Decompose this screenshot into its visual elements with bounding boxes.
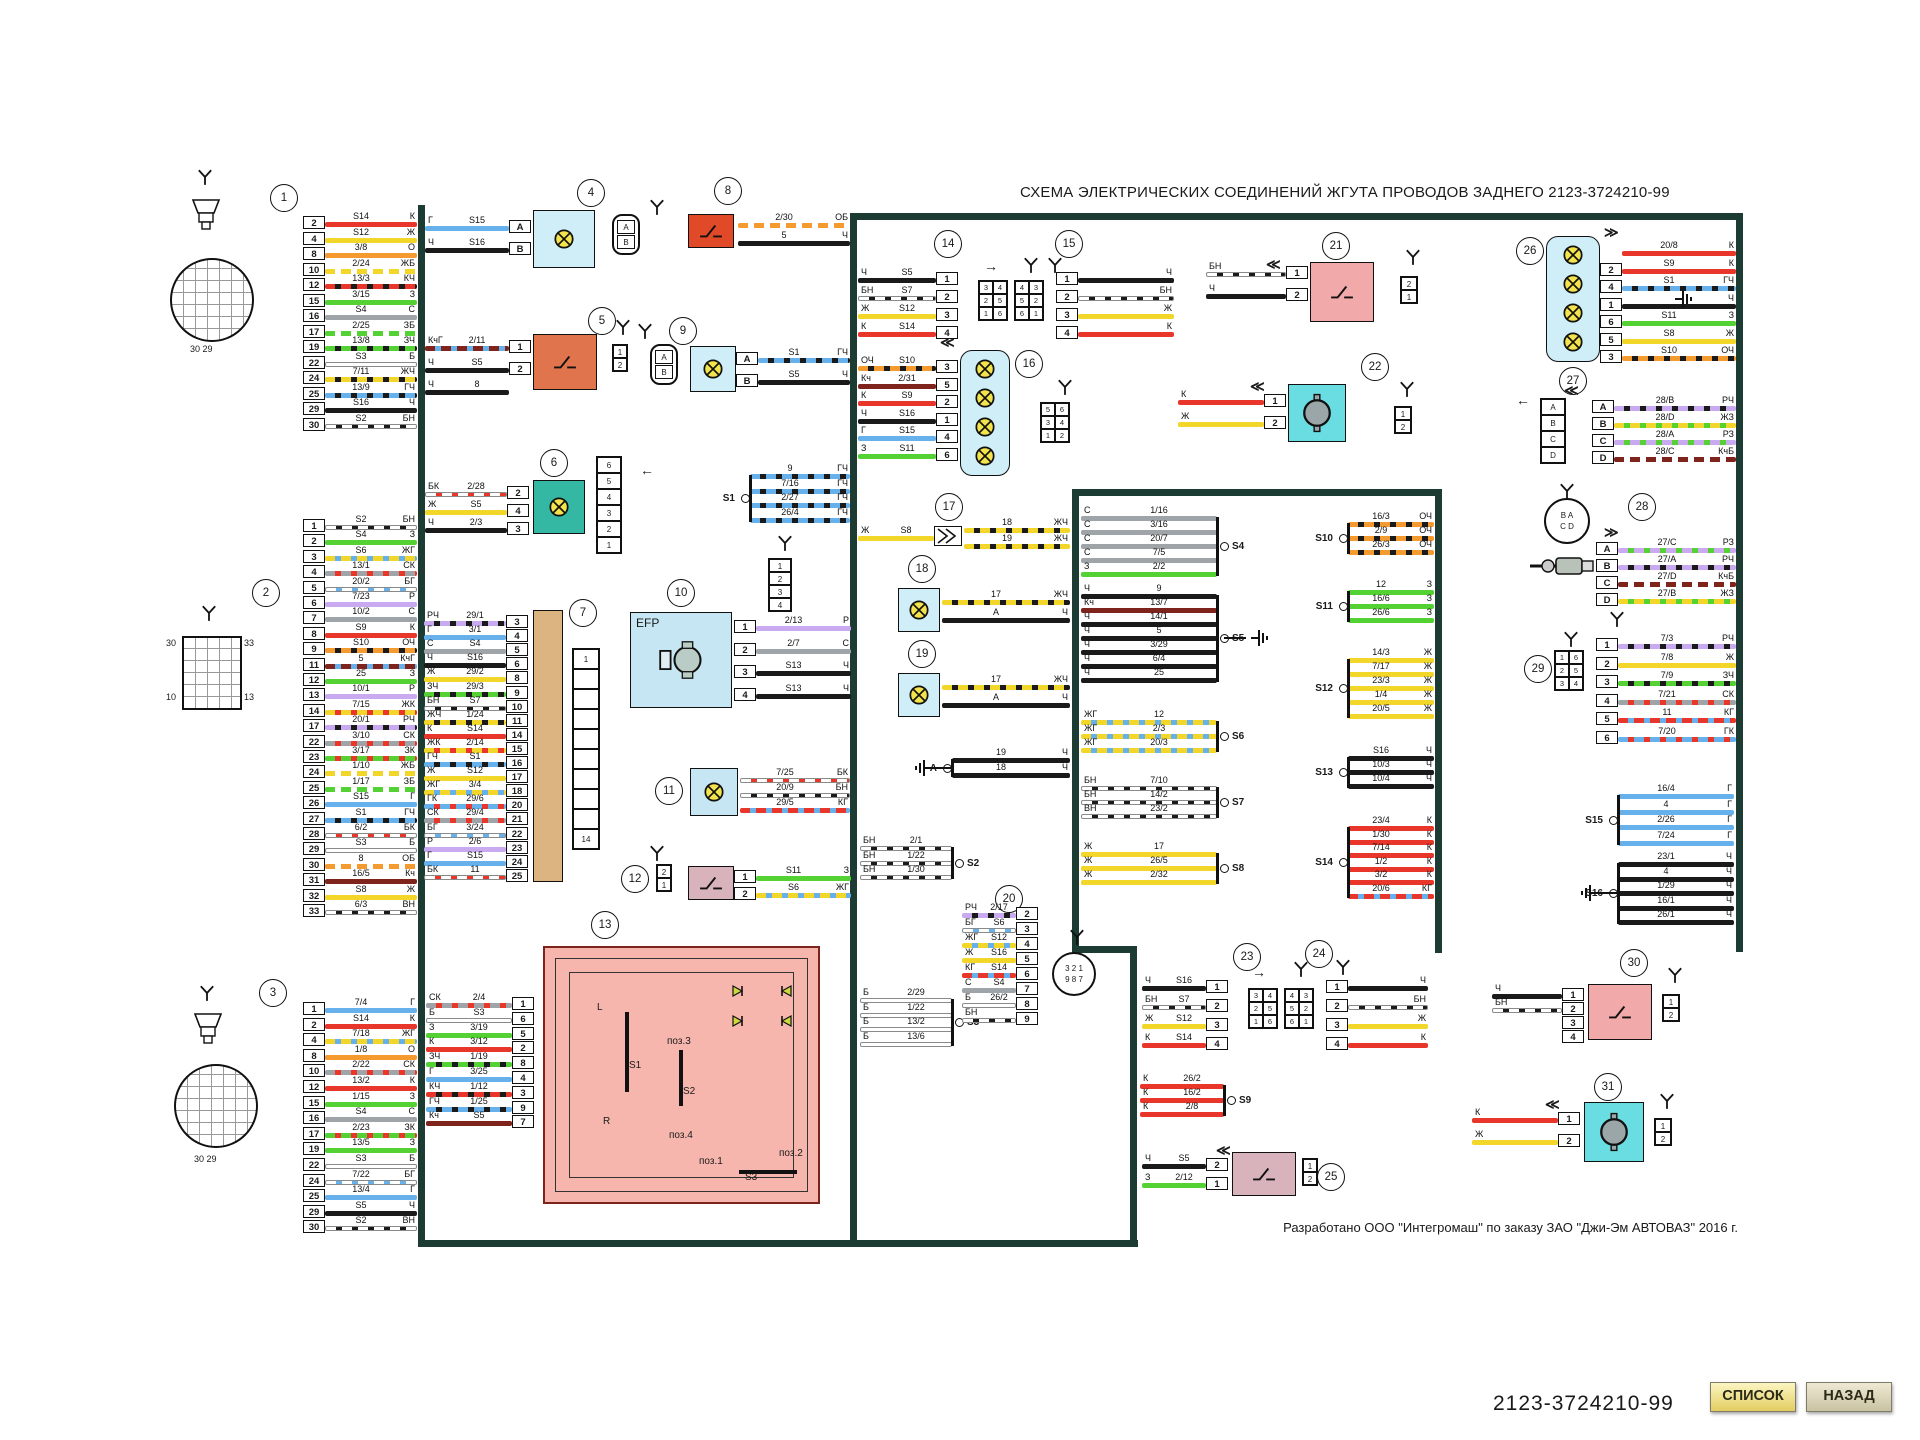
connector-10-pin-4-wire <box>756 694 851 699</box>
splice-S8-0-circuit: 17 <box>1131 841 1187 851</box>
connector-7-pin-21: 21 <box>506 812 528 825</box>
component-3-label: 30 29 <box>194 1154 217 1164</box>
connector-7-pin-23-circuit: 2/6 <box>447 836 503 846</box>
connector-8-pin-0-color-code: ОБ <box>818 212 848 222</box>
splice-S2-0-circuit: 2/1 <box>888 835 944 845</box>
connector-circle-3: 3 <box>259 979 287 1007</box>
splice-S7-0-color-code: БН <box>1084 775 1114 785</box>
splice-S12-0-circuit: 14/3 <box>1353 647 1409 657</box>
connector-2-pin-24-circuit: 1/10 <box>333 760 389 770</box>
connector-30-pin-2: 2 <box>1562 1002 1584 1015</box>
connector-2-pin-3-color-code: ЖГ <box>385 545 415 555</box>
splice-S8-1-color-code: Ж <box>1084 855 1114 865</box>
splice-S8-1-circuit: 26/5 <box>1131 855 1187 865</box>
connector-3-pin-4-circuit: 7/18 <box>333 1028 389 1038</box>
connector-3-pin-17-color-code: ЗК <box>385 1122 415 1132</box>
connector-3-pin-1-color-code: Г <box>385 997 415 1007</box>
connector-2-pin-3: 3 <box>303 550 325 563</box>
connector-circle-22: 22 <box>1361 353 1389 381</box>
splice-S11-2-circuit: 26/6 <box>1353 607 1409 617</box>
harness-branch-icon-16 <box>1056 378 1074 401</box>
connector-27-pin-A-circuit: 28/В <box>1637 395 1693 405</box>
splice-S2-label: S2 <box>967 858 979 869</box>
splice-S7-2-wire <box>1081 814 1217 819</box>
connector-3-pin-16: 16 <box>303 1111 325 1124</box>
connector-1-pin-4: 4 <box>303 232 325 245</box>
list-button[interactable]: СПИСОК <box>1710 1382 1796 1412</box>
connector-2-pin-9: 9 <box>303 642 325 655</box>
mating-connector-icon-5: 12 <box>612 344 628 372</box>
splice-S11-node <box>1339 602 1348 611</box>
connector-28-pin-C-circuit: 27/D <box>1639 571 1695 581</box>
mating-connector-icon-22: 12 <box>1394 406 1412 434</box>
connector-1-pin-15-color-code: З <box>385 289 415 299</box>
connector-15-pin-3-wire <box>1078 314 1174 319</box>
connector-2-pin-2-color-code: З <box>385 529 415 539</box>
connector-12-pin-2-wire <box>756 893 851 898</box>
connector-2-pin-1-circuit: S2 <box>333 514 389 524</box>
splice-S15-3-circuit: 7/24 <box>1638 830 1694 840</box>
splice-S15-0-circuit: 16/4 <box>1638 783 1694 793</box>
connector-26-pin-6-color-code: З <box>1704 310 1734 320</box>
branch-arrow-icon-6: ← <box>640 462 654 478</box>
device-box-21 <box>1310 262 1374 322</box>
connector-1-pin-12-color-code: КЧ <box>385 273 415 283</box>
connector-9-pin-A-circuit: S1 <box>766 347 822 357</box>
connector-10-pin-1-circuit: 2/13 <box>766 615 822 625</box>
branch-arrow-icon-21: ≪ <box>1266 256 1281 273</box>
harness-branch-icon-30 <box>1666 966 1684 989</box>
connector-2-pin-29-color-code: Б <box>385 837 415 847</box>
connector-12-pin-2-color-code: ЖГ <box>819 882 849 892</box>
connector-28-pin-C-color-code: КчБ <box>1704 571 1734 581</box>
connector-22-pin-1-wire <box>1178 400 1264 405</box>
connector-19-pin-0-circuit: 17 <box>968 674 1024 684</box>
splice-S3-1-circuit: 1/22 <box>888 1002 944 1012</box>
back-button[interactable]: НАЗАД <box>1806 1382 1892 1412</box>
document-number: 2123-3724210-99 <box>1493 1392 1674 1416</box>
splice-S12-3-circuit: 1/4 <box>1353 689 1409 699</box>
connector-6-pin-4-circuit: S5 <box>448 499 504 509</box>
connector-21-pin-2-wire <box>1206 294 1286 299</box>
connector-23-pin-2-wire <box>1142 1005 1206 1010</box>
connector-16-pin-4-wire <box>858 436 936 441</box>
connector-7-pin-8: 8 <box>506 671 528 684</box>
connector-8-pin-0-wire <box>738 223 850 228</box>
connector-circle-13: 13 <box>591 911 619 939</box>
connector-1-pin-17-color-code: ЗБ <box>385 320 415 330</box>
connector-9-pin-B-circuit: S5 <box>766 369 822 379</box>
connector-30-pin-2-color-code: БН <box>1495 997 1525 1007</box>
splice-S11-label: S11 <box>1301 601 1333 612</box>
connector-7-pin-4: 4 <box>506 629 528 642</box>
connector-circle-24: 24 <box>1305 940 1333 968</box>
connector-1-pin-19-color-code: ЗЧ <box>385 335 415 345</box>
connector-3-pin-19-circuit: 13/5 <box>333 1137 389 1147</box>
harness-branch-icon-10 <box>776 534 794 557</box>
connector-3-pin-4: 4 <box>303 1033 325 1046</box>
connector-1-pin-15-circuit: 3/15 <box>333 289 389 299</box>
connector-5-pin-1-circuit: 2/11 <box>449 335 505 345</box>
connector-2-pin-23-color-code: ЗК <box>385 745 415 755</box>
connector-11-pin-1-circuit: 20/9 <box>757 782 813 792</box>
harness-trunk-4 <box>418 1240 1138 1247</box>
connector-6-pin-4: 4 <box>507 504 529 517</box>
connector-3-pin-24: 24 <box>303 1174 325 1187</box>
connector-7-pin-20: 20 <box>506 798 528 811</box>
connector-2-pin-26: 26 <box>303 796 325 809</box>
connector-3-pin-16-circuit: S4 <box>333 1106 389 1116</box>
connector-27-pin-C: C <box>1592 434 1614 447</box>
connector-2-pin-8-color-code: К <box>385 622 415 632</box>
connector-24-pin-2: 2 <box>1326 999 1348 1012</box>
connector-27-pin-B: B <box>1592 417 1614 430</box>
connector-20-pin-4-circuit: S12 <box>971 932 1027 942</box>
branch-arrow-icon-28: ≫ <box>1604 524 1619 541</box>
mating-connector-icon-31: 12 <box>1654 1118 1672 1146</box>
connector-1-pin-8: 8 <box>303 247 325 260</box>
connector-30-pin-3: 3 <box>1562 1016 1584 1029</box>
connector-2-pin-14: 14 <box>303 704 325 717</box>
splice-S2-node <box>955 859 964 868</box>
connector-19-pin-1-wire <box>942 703 1070 708</box>
connector-9-pin-B: B <box>736 374 758 387</box>
connector-23-pin-1-wire <box>1142 986 1206 991</box>
connector-13-pin-8: 8 <box>512 1056 534 1069</box>
connector-24-pin-4-color-code: К <box>1396 1032 1426 1042</box>
connector-21-pin-2-color-code: Ч <box>1209 283 1239 293</box>
connector-15-pin-4-wire <box>1078 332 1174 337</box>
splice-S9-node <box>1227 1096 1236 1105</box>
connector-3-pin-30-color-code: ВН <box>385 1215 415 1225</box>
connector-2-pin-32: 32 <box>303 889 325 902</box>
device-box-4 <box>533 210 595 268</box>
splice-S14-2-circuit: 7/14 <box>1353 842 1409 852</box>
harness-branch-icon-22 <box>1398 380 1416 403</box>
connector-16-pin-1-wire <box>858 419 936 424</box>
connector-19-pin-1-color-code: Ч <box>1038 692 1068 702</box>
connector-2-pin-8-circuit: S9 <box>333 622 389 632</box>
connector-29-pin-1-wire <box>1618 644 1736 649</box>
connector-2-pin-25-circuit: 1/17 <box>333 776 389 786</box>
hazard-label-поз.4: поз.4 <box>669 1130 693 1141</box>
connector-2-pin-29-circuit: S3 <box>333 837 389 847</box>
connector-2-pin-1: 1 <box>303 519 325 532</box>
connector-1-pin-24-circuit: 7/11 <box>333 366 389 376</box>
splice-S5-3-color-code: Ч <box>1084 625 1114 635</box>
connector-2-pin-7-color-code: С <box>385 606 415 616</box>
splice-S4-0-color-code: С <box>1084 505 1114 515</box>
connector-3-pin-24-color-code: БГ <box>385 1169 415 1179</box>
splice-S3-gather <box>951 999 954 1046</box>
connector-20-pin-3-circuit: S6 <box>971 917 1027 927</box>
connector-2-pin-28-circuit: 6/2 <box>333 822 389 832</box>
connector-31-pin-1-color-code: К <box>1475 1107 1505 1117</box>
connector-2-pin-30: 30 <box>303 858 325 871</box>
connector-7-pin-17: 17 <box>506 770 528 783</box>
connector-3-pin-22: 22 <box>303 1158 325 1171</box>
connector-12-pin-1: 1 <box>734 870 756 883</box>
lamp-icon-16-2 <box>972 414 998 445</box>
device-box-12 <box>688 866 734 900</box>
connector-28-pin-B-color-code: РЧ <box>1704 554 1734 564</box>
splice-S4-4-color-code: З <box>1084 561 1114 571</box>
connector-25-pin-2-circuit: S5 <box>1156 1153 1212 1163</box>
connector-face-icon-1 <box>170 258 254 342</box>
connector-face-icon-2 <box>182 636 242 710</box>
connector-20-pin-9: 9 <box>1016 1012 1038 1025</box>
splice-S1-node <box>741 494 750 503</box>
hazard-label-поз.3: поз.3 <box>667 1036 691 1047</box>
connector-27-pin-C-wire <box>1614 440 1736 445</box>
connector-29-pin-4: 4 <box>1596 694 1618 707</box>
connector-16-pin-6-circuit: S11 <box>879 443 935 453</box>
connector-1-pin-10-circuit: 2/24 <box>333 258 389 268</box>
connector-5-pin-1: 1 <box>509 340 531 353</box>
diode-icon-2 <box>731 1014 747 1032</box>
splice-S12-1-circuit: 7/17 <box>1353 661 1409 671</box>
connector-circle-5: 5 <box>588 307 616 335</box>
splice-S4-4-circuit: 2/2 <box>1131 561 1187 571</box>
harness-trunk-9 <box>1130 946 1137 1247</box>
connector-26-pin-4-circuit: S1 <box>1641 275 1697 285</box>
harness-branch-icon-31 <box>1658 1092 1676 1115</box>
connector-12-pin-1-circuit: S11 <box>766 865 822 875</box>
connector-3-pin-25-color-code: Г <box>385 1184 415 1194</box>
connector-30-pin-1: 1 <box>1562 988 1584 1001</box>
harness-branch-icon-3 <box>198 984 216 1007</box>
harness-trunk-2 <box>850 213 1740 220</box>
connector-2-pin-33-wire <box>325 910 417 915</box>
connector-3-pin-10-circuit: 2/22 <box>333 1059 389 1069</box>
connector-27-pin-A-wire <box>1614 406 1736 411</box>
connector-29-pin-6-circuit: 7/20 <box>1639 726 1695 736</box>
connector-4-pin-B-wire <box>425 248 509 253</box>
connector-2-pin-6-circuit: 7/23 <box>333 591 389 601</box>
connector-13-pin-3-circuit: 1/12 <box>451 1081 507 1091</box>
connector-31-pin-1: 1 <box>1558 1112 1580 1125</box>
connector-7-pin-22-circuit: 3/24 <box>447 822 503 832</box>
connector-27-pin-D-color-code: КчБ <box>1704 446 1734 456</box>
splice-S12-4-wire <box>1348 714 1434 719</box>
connector-31-pin-1-wire <box>1472 1118 1558 1123</box>
splice-S14-label: S14 <box>1301 857 1333 868</box>
splice-S8-node <box>1220 864 1229 873</box>
splice-S3-3-wire <box>860 1042 952 1047</box>
connector-circle-6: 6 <box>540 449 568 477</box>
connector-26-pin-2-color-code: К <box>1704 258 1734 268</box>
connector-2-pin-4: 4 <box>303 565 325 578</box>
splice-S1-label: S1 <box>703 493 735 504</box>
connector-24-pin-1: 1 <box>1326 980 1348 993</box>
connector-6-pin-2: 2 <box>507 486 529 499</box>
mating-connector-icon-21: 21 <box>1400 276 1418 304</box>
hazard-label-S2: S2 <box>683 1086 695 1097</box>
splice-S9-label: S9 <box>1239 1095 1251 1106</box>
connector-15-pin-2-wire <box>1078 296 1174 301</box>
connector-15-pin-3-color-code: Ж <box>1142 303 1172 313</box>
connector-28-pin-B-wire <box>1618 565 1736 570</box>
connector-2-pin-31-circuit: 16/5 <box>333 868 389 878</box>
connector-29-pin-5-color-code: КГ <box>1704 707 1734 717</box>
splice-S9-1-circuit: 16/2 <box>1164 1087 1220 1097</box>
connector-25-pin-1-wire <box>1142 1183 1206 1188</box>
connector-2-pin-24: 24 <box>303 765 325 778</box>
lamp-icon-26-2 <box>1560 300 1586 331</box>
splice-S5-6-wire <box>1081 678 1217 683</box>
connector-10-pin-4: 4 <box>734 688 756 701</box>
hazard-label-S3: S3 <box>745 1172 757 1183</box>
connector-28-pin-D-wire <box>1618 599 1736 604</box>
mating-connector-icon-27: ABCD <box>1540 398 1566 464</box>
connector-7-pin-4-circuit: 3/1 <box>447 624 503 634</box>
connector-2-pin-26-circuit: S15 <box>333 791 389 801</box>
splice-S4-0-circuit: 1/16 <box>1131 505 1187 515</box>
connector-7-pin-10: 10 <box>506 700 528 713</box>
connector-1-pin-8-color-code: О <box>385 242 415 252</box>
connector-6-pin-3-circuit: 2/3 <box>448 517 504 527</box>
connector-20-pin-2-circuit: 2/17 <box>971 902 1027 912</box>
connector-25-pin-1-circuit: 2/12 <box>1156 1172 1212 1182</box>
connector-27-pin-D-wire <box>1614 457 1736 462</box>
connector-7-pin-25: 25 <box>506 869 528 882</box>
connector-29-pin-4-wire <box>1618 700 1736 705</box>
connector-13-pin-7: 7 <box>512 1115 534 1128</box>
splice-S6-0-color-code: ЖГ <box>1084 709 1114 719</box>
connector-10-pin-4-circuit: S13 <box>766 683 822 693</box>
connector-15-pin-3: 3 <box>1056 308 1078 321</box>
connector-2-pin-5-color-code: БГ <box>385 576 415 586</box>
splice-S10-2-wire <box>1348 550 1434 555</box>
splice-S2-2-circuit: 1/30 <box>888 864 944 874</box>
connector-circle-14: 14 <box>934 230 962 258</box>
connector-26-pin-5: 5 <box>1600 333 1622 346</box>
connector-2-pin-33-circuit: 6/3 <box>333 899 389 909</box>
connector-7-pin-10-circuit: S7 <box>447 695 503 705</box>
connector-1-pin-25: 25 <box>303 387 325 400</box>
connector-2-pin-4-circuit: 13/1 <box>333 560 389 570</box>
connector-27-pin-B-color-code: ЖЗ <box>1704 412 1734 422</box>
harness-trunk-0 <box>418 205 425 1247</box>
lamp-icon-26-0 <box>1560 242 1586 273</box>
connector-7-pin-24-circuit: S15 <box>447 850 503 860</box>
diode-icon-0 <box>731 984 747 1002</box>
splice-S9-0-circuit: 26/2 <box>1164 1073 1220 1083</box>
connector-31-pin-2: 2 <box>1558 1134 1580 1147</box>
connector-7-pin-23: 23 <box>506 841 528 854</box>
splice-S3-2-circuit: 13/2 <box>888 1016 944 1026</box>
connector-31-pin-2-color-code: Ж <box>1475 1129 1505 1139</box>
connector-26-pin-2-circuit: S9 <box>1641 258 1697 268</box>
connector-19-pin-0-color-code: ЖЧ <box>1038 674 1068 684</box>
connector-29-pin-5-wire <box>1618 718 1736 723</box>
connector-24-pin-4: 4 <box>1326 1037 1348 1050</box>
connector-15-pin-1-color-code: Ч <box>1142 267 1172 277</box>
connector-1-pin-29-color-code: Ч <box>385 397 415 407</box>
splice-S14-node <box>1339 858 1348 867</box>
splice-S5-6-color-code: Ч <box>1084 667 1114 677</box>
connector-23-pin-4-wire <box>1142 1043 1206 1048</box>
branch-arrow-icon-27: ← <box>1516 392 1530 408</box>
connector-2-pin-33: 33 <box>303 904 325 917</box>
oxygen-sensor-icon-28 <box>1524 550 1596 587</box>
connector-1-pin-29-circuit: S16 <box>333 397 389 407</box>
connector-1-pin-30-circuit: S2 <box>333 413 389 423</box>
device-box-8 <box>688 214 734 248</box>
harness-branch-icon-14 <box>1022 256 1040 279</box>
splice-S1-3-circuit: 26/4 <box>762 507 818 517</box>
connector-30-pin-1-color-code: Ч <box>1495 983 1525 993</box>
connector-10-pin-1: 1 <box>734 620 756 633</box>
splice-S5-5-circuit: 6/4 <box>1131 653 1187 663</box>
connector-11-pin-0-color-code: БК <box>818 767 848 777</box>
splice-S7-1-color-code: БН <box>1084 789 1114 799</box>
connector-24-pin-1-wire <box>1348 986 1428 991</box>
connector-3-pin-2-circuit: S14 <box>333 1013 389 1023</box>
connector-12-pin-1-wire <box>756 876 851 881</box>
lamp-icon-16-0 <box>972 356 998 387</box>
connector-8-pin-1-color-code: Ч <box>818 230 848 240</box>
splice-S7-2-color-code: ВН <box>1084 803 1114 813</box>
splice-S16-4-wire <box>1618 920 1734 925</box>
connector-circle-11: 11 <box>655 777 683 805</box>
splice-S7-1-circuit: 14/2 <box>1131 789 1187 799</box>
branch-arrow-icon-23: → <box>1252 964 1266 980</box>
splice-S4-label: S4 <box>1232 541 1244 552</box>
connector-26-pin-2-wire <box>1622 269 1736 274</box>
device-box-9 <box>690 346 736 392</box>
connector-2-pin-32-color-code: Ж <box>385 884 415 894</box>
connector-28-pin-A-wire <box>1618 548 1736 553</box>
connector-29-pin-4-circuit: 7/21 <box>1639 689 1695 699</box>
splice-А-1-wire <box>952 773 1070 778</box>
connector-4-pin-A-wire <box>425 226 509 231</box>
splice-S6-node <box>1220 732 1229 741</box>
connector-1-pin-24-color-code: ЖЧ <box>385 366 415 376</box>
splice-S15-2-color-code: Г <box>1702 814 1732 824</box>
connector-13-pin-4: 4 <box>512 1071 534 1084</box>
connector-2-pin-6-color-code: Р <box>385 591 415 601</box>
connector-7-pin-20-circuit: 29/6 <box>447 793 503 803</box>
connector-2-pin-27-circuit: S1 <box>333 807 389 817</box>
connector-29-pin-1-circuit: 7/3 <box>1639 633 1695 643</box>
splice-S1-0-color-code: ГЧ <box>818 463 848 473</box>
connector-28-pin-B: B <box>1596 559 1618 572</box>
connector-29-pin-3-wire <box>1618 681 1736 686</box>
connector-10-pin-3-circuit: S13 <box>766 660 822 670</box>
connector-2-pin-26-color-code: Г <box>385 791 415 801</box>
splice-S14-4-circuit: 3/2 <box>1353 869 1409 879</box>
connector-3-pin-25: 25 <box>303 1189 325 1202</box>
connector-26-pin-1-color-code: Ч <box>1704 293 1734 303</box>
connector-3-pin-25-circuit: 13/4 <box>333 1184 389 1194</box>
connector-7-pin-11: 11 <box>506 714 528 727</box>
connector-19-pin-1-circuit: А <box>968 692 1024 702</box>
connector-circle-16: 16 <box>1015 350 1043 378</box>
connector-2-pin-7-circuit: 10/2 <box>333 606 389 616</box>
connector-6-pin-3: 3 <box>507 522 529 535</box>
connector-3-pin-22-color-code: Б <box>385 1153 415 1163</box>
ground-icon-26 <box>1674 288 1696 315</box>
harness-branch-icon-5 <box>614 318 632 341</box>
connector-2-pin-5: 5 <box>303 581 325 594</box>
splice-S5-6-circuit: 25 <box>1131 667 1187 677</box>
connector-3-pin-17-circuit: 2/23 <box>333 1122 389 1132</box>
connector-16-pin-6: 6 <box>936 448 958 461</box>
splice-S1-3-wire <box>750 518 850 523</box>
connector-9-pin-B-color-code: Ч <box>818 369 848 379</box>
connector-2-pin-25: 25 <box>303 781 325 794</box>
